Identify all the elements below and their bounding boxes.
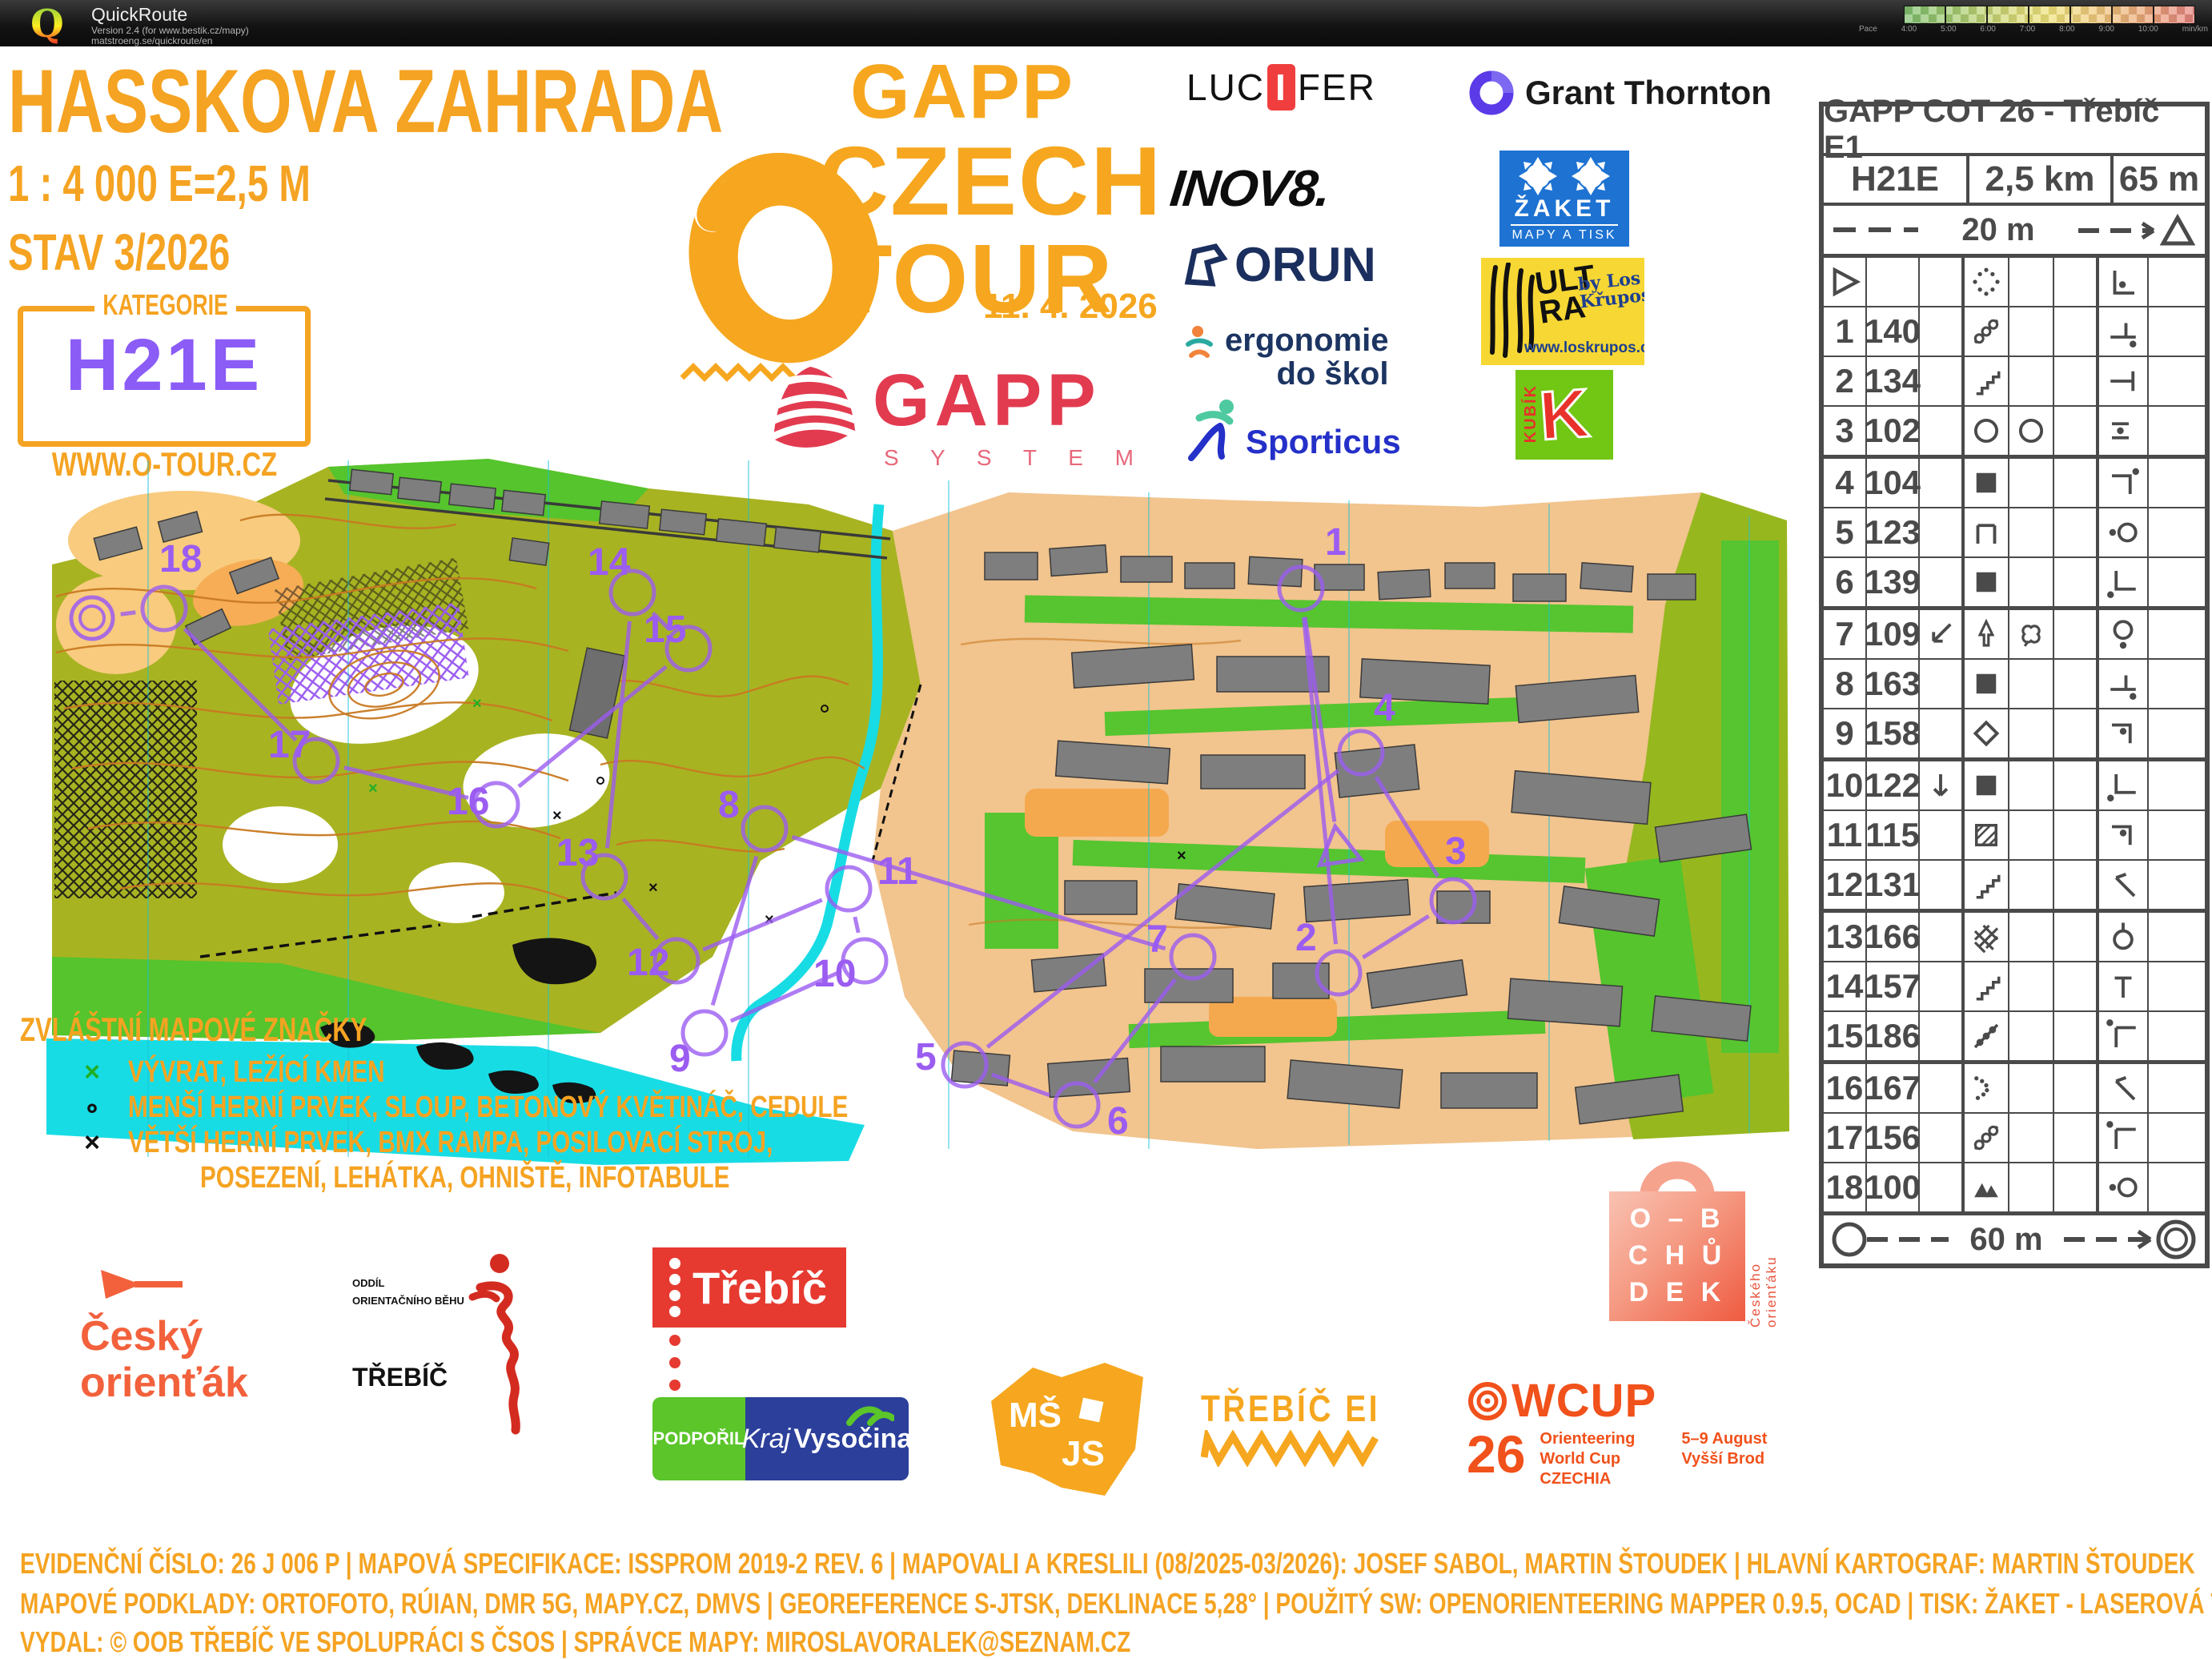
arrow-sw-icon [1924,617,1957,651]
cd-cell-col1 [1824,258,1867,306]
cd-cell-col3 [1920,357,1965,405]
cd-cell-col5 [2009,258,2054,306]
pace-tick: Pace [1859,25,1877,34]
svg-text:×: × [368,780,378,797]
logo-wcup26: WCUP 26 OrienteeringWorld CupCZECHIA 5–9… [1467,1374,1767,1489]
control-number-4: 4 [1374,687,1395,729]
cd-cell-col8 [2149,709,2195,757]
sponsor-inov8: INOV8. [1167,159,1332,218]
wcup-26: 26 [1467,1429,1525,1489]
edge-s-dot-icon [2106,315,2140,348]
cd-cell-col7 [2099,1064,2149,1112]
svg-text:×: × [552,807,562,825]
cd-cell-col4 [1965,1064,2009,1112]
cd-cell-col2: 100 [1867,1163,1920,1211]
cd-cell-col7 [2099,962,2149,1010]
cd-cell-col5 [2009,1064,2054,1112]
pace-tick: 4:00 [1901,25,1917,34]
control-row-4: 4104 [1824,455,2205,507]
cd-cell-col1: 16 [1824,1064,1867,1112]
pace-tick: 5:00 [1941,25,1956,34]
map-title: HASSKOVA ZAHRADA [8,50,723,153]
kraj-bird-icon [846,1404,894,1428]
cd-cell-col5 [2009,1163,2054,1211]
cd-cell-col5 [2009,1012,2054,1060]
krupos-web: www.loskrupos.cz [1524,339,1644,357]
pace-tick: 7:00 [2020,25,2035,34]
app-title-bar [0,0,2212,46]
trebic-dots-icon [667,1257,683,1318]
control-number-11: 11 [877,850,918,893]
building-icon [1969,466,2003,500]
logo-oob-trebic: ODDÍL ORIENTAČNÍHO BĚHU TŘEBÍČ [352,1275,536,1392]
cd-cell-col3 [1920,962,1965,1010]
pace-tick-labels: Pace4:005:006:007:008:009:0010:00min/km [1859,25,2208,34]
cd-cell-col5 [2009,357,2054,405]
wcup-target-icon [1467,1380,1508,1422]
control-number-8: 8 [718,784,740,826]
cd-cell-col6 [2054,1064,2099,1112]
cd-cell-col8 [2149,357,2195,405]
gapp-system-name: GAPP [873,359,1101,443]
cd-cell-col7 [2099,861,2149,909]
course-leg [855,917,858,933]
cd-cell-col4 [1965,307,2009,355]
cd-cell-col6 [2054,709,2099,757]
cd-cell-col1: 13 [1824,913,1867,961]
map-state: STAV 3/2026 [8,223,230,282]
event-logo-czech: CZECH [818,125,1162,237]
sponsor-lucifer: LUCIFER [1186,64,1376,110]
cd-cell-col5 [2009,1114,2054,1162]
sponsor-los-krupos: ULTRA by Los Křupos www.loskrupos.cz [1481,258,1644,365]
cd-cell-col8 [2149,861,2195,909]
cd-cell-col8 [2149,407,2195,455]
card-start-distance-row: 20 m [1824,203,2205,254]
cd-cell-col8 [2149,811,2195,859]
inside-corner-nw-dot-icon [2106,265,2140,299]
cd-cell-col6 [2054,1012,2099,1060]
ms-js-blob-icon: MŠ JS [985,1353,1153,1505]
start-distance-value: 20 m [1961,212,2034,248]
control-number-16: 16 [447,781,489,823]
oob-runner-icon [456,1252,552,1436]
cd-cell-col2: 131 [1867,861,1920,909]
krupos-by: by Los Křupos [1577,268,1644,311]
cd-cell-col5 [2009,811,2054,859]
cd-cell-col4 [1965,558,2009,606]
corner-nw-dot-out-icon [2106,1019,2140,1053]
cd-cell-col5 [2009,558,2054,606]
cd-cell-col5 [2009,660,2054,708]
control-row-10: 10122 [1824,757,2205,809]
dash-icon [1832,224,1920,235]
cd-cell-col5 [2009,962,2054,1010]
cd-cell-col6 [2054,258,2099,306]
cd-cell-col2: 134 [1867,357,1920,405]
control-number-6: 6 [1107,1100,1129,1143]
finish-start-circle-icon [1830,1219,1950,1260]
svg-text:MŠ: MŠ [1009,1394,1062,1435]
quickroute-logo-icon: Q [30,2,64,46]
cd-cell-col8 [2149,258,2195,306]
hatched-square-icon [1969,818,2003,852]
corner-nw-dot-out-icon [2106,1121,2140,1155]
svg-text:×: × [472,695,482,713]
svg-text:×: × [648,879,658,897]
event-logo-gapp: GAPP [850,48,1074,136]
dotted-bend-icon [1969,1071,2003,1105]
crosshatch-icon [1969,920,2003,954]
cd-cell-col5 [2009,610,2054,658]
cd-cell-col6 [2054,357,2099,405]
between-icon [2106,414,2140,448]
cd-cell-col8 [2149,610,2195,658]
cd-cell-col2: 123 [1867,508,1920,556]
cd-cell-col1: 11 [1824,811,1867,859]
cd-cell-col4 [1965,913,2009,961]
corner-sw-dot-icon [2106,565,2140,599]
tree-icon [1969,617,2003,651]
control-number-7: 7 [1146,918,1168,961]
cd-cell-col6 [2054,459,2099,507]
cd-cell-col7 [2099,761,2149,809]
circle-dot-below-icon [2106,617,2140,651]
control-number-5: 5 [915,1036,937,1079]
control-row-5: 5123 [1824,507,2205,556]
control-number-18: 18 [159,538,202,580]
pace-tick: 9:00 [2098,25,2114,34]
cd-cell-col3 [1920,1064,1965,1112]
control-number-3: 3 [1445,830,1467,873]
control-number-2: 2 [1295,917,1317,959]
cd-cell-col3 [1920,1163,1965,1211]
control-number-10: 10 [813,953,856,995]
cd-cell-col7 [2099,913,2149,961]
control-number-17: 17 [268,724,311,766]
cd-cell-col2: 186 [1867,1012,1920,1060]
dot-circle-left-icon [2106,1171,2140,1204]
cd-cell-col4 [1965,709,2009,757]
cd-cell-col2: 109 [1867,610,1920,658]
cd-cell-col7 [2099,1163,2149,1211]
cd-cell-col4 [1965,610,2009,658]
cd-cell-col6 [2054,558,2099,606]
cd-cell-col6 [2054,861,2099,909]
cd-cell-col7 [2099,1114,2149,1162]
cd-cell-col3 [1920,761,1965,809]
cd-cell-col6 [2054,1114,2099,1162]
card-title: GAPP COT 26 - Třebíč E1 [1824,106,2205,153]
control-description-card: GAPP COT 26 - Třebíč E1 H21E 2,5 km 65 m… [1819,102,2210,1268]
map-scale: 1 : 4 000 E=2,5 M [8,154,311,213]
cd-cell-col1: 4 [1824,459,1867,507]
cd-cell-col4 [1965,660,2009,708]
cd-cell-col5 [2009,508,2054,556]
cd-cell-col3 [1920,660,1965,708]
cd-cell-col1: 5 [1824,508,1867,556]
cd-cell-col8 [2149,1064,2195,1112]
cd-cell-col3 [1920,913,1965,961]
start-col-icon [1828,265,1861,299]
cd-cell-col8 [2149,307,2195,355]
cd-cell-col7 [2099,459,2149,507]
grant-thornton-icon [1469,70,1514,115]
cd-cell-col8 [2149,459,2195,507]
stairs-icon [1969,868,2003,902]
cd-cell-col8 [2149,1114,2195,1162]
kraj-vysocina-name: KrajVysočina [745,1397,909,1480]
control-row-17: 17156 [1824,1112,2205,1162]
control-number-12: 12 [627,942,669,984]
slope-ne-icon [2106,1071,2140,1105]
cd-cell-col1: 3 [1824,407,1867,455]
control-row-8: 8163 [1824,658,2205,708]
cd-cell-col3 [1920,558,1965,606]
cd-cell-col2: 163 [1867,660,1920,708]
cd-cell-col8 [2149,660,2195,708]
dotted-diamond-icon [1969,265,2003,299]
cd-cell-col6 [2054,962,2099,1010]
card-climb: 65 m [2114,156,2205,203]
cd-cell-col8 [2149,962,2195,1010]
cd-cell-col7 [2099,610,2149,658]
t-right-icon [2106,364,2140,398]
cd-cell-col3 [1920,709,1965,757]
cd-cell-col4 [1965,861,2009,909]
cd-cell-col6 [2054,811,2099,859]
cd-cell-col2: 156 [1867,1114,1920,1162]
zaket-suns-icon [1514,155,1615,197]
cd-cell-col5 [2009,459,2054,507]
control-row-11: 11115 [1824,809,2205,859]
corner-ne-dot-icon [2106,466,2140,500]
stairs-icon [1969,364,2003,398]
logo-cesky-orientak: Českýorienťák [80,1313,248,1406]
stairs-icon [1969,970,2003,1003]
pace-gradient-legend [1904,6,2195,24]
control-row-7: 7109 [1824,606,2205,658]
cd-cell-col2: 102 [1867,407,1920,455]
cd-cell-col8 [2149,508,2195,556]
canopy-icon [1969,516,2003,549]
cd-cell-col8 [2149,761,2195,809]
cd-cell-col1: 12 [1824,861,1867,909]
pace-tick: 6:00 [1980,25,1995,34]
finish-double-circle-icon [2062,1219,2198,1260]
cd-cell-col2 [1867,258,1920,306]
legend-item-3: × VĚTŠÍ HERNÍ PRVEK, BMX RAMPA, POSILOVA… [56,1126,954,1160]
control-number-1: 1 [1325,521,1347,564]
cd-cell-col1: 1 [1824,307,1867,355]
trebic-e1-zigzag-icon [1201,1430,1385,1467]
card-class: H21E [1824,156,1969,203]
control-row-6: 6139 [1824,556,2205,606]
control-row-15: 15186 [1824,1010,2205,1060]
control-row-1: 1140 [1824,306,2205,355]
lucifer-i-badge: I [1267,64,1295,110]
cd-cell-col4 [1965,1114,2009,1162]
control-row-18: 18100 [1824,1162,2205,1211]
cd-cell-col1: 7 [1824,610,1867,658]
t-top-icon [2106,970,2140,1003]
pace-tick: min/km [2182,25,2208,34]
edge-s-dot-icon [2106,667,2140,701]
control-number-9: 9 [669,1038,691,1080]
corner-sw-dot-icon [2106,769,2140,802]
sponsor-grant-thornton: Grant Thornton [1469,70,1772,115]
pace-tick: 10:00 [2138,25,2158,34]
cd-cell-col4 [1965,357,2009,405]
cd-cell-col3 [1920,459,1965,507]
zaket-name: ŽAKET [1499,195,1629,223]
cd-cell-col7 [2099,508,2149,556]
credit-line-1: EVIDENČNÍ ČÍSLO: 26 J 006 P | MAPOVÁ SPE… [20,1547,2212,1581]
boulders-icon [1969,1171,2003,1204]
lucifer-post: FER [1298,66,1376,109]
cd-cell-col6 [2054,508,2099,556]
cd-cell-col6 [2054,913,2099,961]
control-number-15: 15 [644,609,686,651]
sponsor-ergonomie: ergonomie do škol [1183,323,1388,391]
cd-cell-col6 [2054,660,2099,708]
logo-ms-js: MŠ JS [985,1353,1153,1509]
green-x-icon: × [56,1057,128,1088]
logo-kraj-vysocina: PODPOŘIL KrajVysočina [652,1397,909,1480]
diamond-icon [1969,717,2003,750]
cd-cell-col4 [1965,1012,2009,1060]
cd-cell-col4 [1965,1163,2009,1211]
cd-cell-col7 [2099,811,2149,859]
cd-cell-col3 [1920,861,1965,909]
building-icon [1969,769,2003,802]
cd-cell-col5 [2009,307,2054,355]
svg-text:×: × [1177,847,1186,865]
app-url-line: matstroeng.se/quickroute/en [91,35,212,46]
cd-cell-col7 [2099,357,2149,405]
control-row-9: 9158 [1824,708,2205,757]
course-leg [121,613,136,614]
control-row-2: 2134 [1824,355,2205,405]
lucifer-pre: LUC [1186,66,1265,109]
cd-cell-col3 [1920,407,1965,455]
corner-ne-dot-inside-icon [2106,717,2140,750]
finish-distance-value: 60 m [1969,1222,2042,1258]
credit-line-3: VYDAL: © OOB TŘEBÍČ VE SPOLUPRÁCI S ČSOS… [20,1625,1443,1659]
cd-cell-col5 [2009,913,2054,961]
cd-cell-col2: 167 [1867,1064,1920,1112]
chain-icon [1969,315,2003,348]
trebic-dots-below-icon [667,1332,683,1396]
cd-cell-col2: 122 [1867,761,1920,809]
cd-cell-col6 [2054,407,2099,455]
event-date: 11. 4. 2026 [983,287,1158,327]
ergonomie-figure-icon [1183,323,1217,365]
logo-trebic-e1: TŘEBÍČ EI [1201,1387,1411,1471]
building-icon [1969,565,2003,599]
logo-obchudek: O – B C H Ů D E K Českého orienťáku [1605,1151,1757,1328]
cd-cell-col1: 15 [1824,1012,1867,1060]
cd-cell-col5 [2009,761,2054,809]
svg-text:JS: JS [1062,1434,1105,1473]
cd-cell-col5 [2009,861,2054,909]
cd-cell-col8 [2149,1012,2195,1060]
control-row-14: 14157 [1824,961,2205,1010]
cd-cell-col3 [1920,508,1965,556]
cd-cell-col4 [1965,407,2009,455]
zaket-sub: MAPY A TISK [1511,224,1618,243]
control-row-16: 16167 [1824,1060,2205,1112]
cd-cell-col7 [2099,709,2149,757]
credit-line-2: MAPOVÉ PODKLADY: ORTOFOTO, RÚIAN, DMR 5G… [20,1587,2212,1621]
cd-cell-col3 [1920,811,1965,859]
cd-cell-col6 [2054,307,2099,355]
black-x-icon: × [56,1127,128,1159]
kraj-podporil: PODPOŘIL [652,1397,745,1480]
control-number-13: 13 [556,832,599,874]
fence-dots-icon [1969,1019,2003,1053]
dot-circle-left-icon [2106,516,2140,549]
cd-cell-col8 [2149,558,2195,606]
legend-item-1: × VÝVRAT, LEŽÍCÍ KMEN [56,1055,457,1090]
cd-cell-col4 [1965,258,2009,306]
ergonomie-line2: do škol [1225,357,1388,391]
cd-cell-col1: 6 [1824,558,1867,606]
cd-cell-col6 [2054,1163,2099,1211]
circle-icon [2014,414,2048,448]
cd-cell-col7 [2099,258,2149,306]
dash-arrow-triangle-icon [2077,211,2197,248]
cd-cell-col5 [2009,709,2054,757]
card-class-row: H21E 2,5 km 65 m [1824,153,2205,203]
cesky-orientak-flag-icon [94,1263,191,1312]
bush-icon [2014,617,2048,651]
cd-cell-col6 [2054,761,2099,809]
cd-cell-col5 [2009,407,2054,455]
legend-item-3b: POSEZENÍ, LEHÁTKA, OHNIŠTĚ, INFOTABULE [200,1161,879,1195]
cd-cell-col3 [1920,610,1965,658]
cd-cell-col1: 9 [1824,709,1867,757]
cd-cell-col1: 17 [1824,1114,1867,1162]
cd-cell-col1: 2 [1824,357,1867,405]
cd-cell-col2: 158 [1867,709,1920,757]
cd-cell-col1: 18 [1824,1163,1867,1211]
corner-ne-dot-inside-icon [2106,818,2140,852]
cd-cell-col2: 115 [1867,811,1920,859]
cd-cell-col7 [2099,1012,2149,1060]
card-length: 2,5 km [1969,156,2114,203]
grant-thornton-name: Grant Thornton [1525,74,1772,112]
cd-cell-col1: 8 [1824,660,1867,708]
card-control-rows: 1140213431024104512361397109816391581012… [1824,254,2205,1211]
cd-cell-col7 [2099,307,2149,355]
cd-cell-col4 [1965,508,2009,556]
slope-ne-icon [2106,868,2140,902]
orun-name: ORUN [1234,237,1376,292]
black-o-icon: ∘ [56,1092,128,1124]
orun-icon [1183,242,1230,288]
cd-cell-col1: 10 [1824,761,1867,809]
cd-cell-col2: 140 [1867,307,1920,355]
control-row-start [1824,254,2205,306]
legend-item-2: ∘ MENŠÍ HERNÍ PRVEK, SLOUP, BETONOVÝ KVĚ… [56,1091,1051,1125]
control-row-13: 13166 [1824,909,2205,961]
control-row-3: 3102 [1824,405,2205,455]
legend-title: ZVLÁŠTNÍ MAPOVÉ ZNAČKY [20,1010,367,1049]
cd-cell-col6 [2054,610,2099,658]
cd-cell-col3 [1920,258,1965,306]
ergonomie-line1: ergonomie [1225,323,1388,357]
